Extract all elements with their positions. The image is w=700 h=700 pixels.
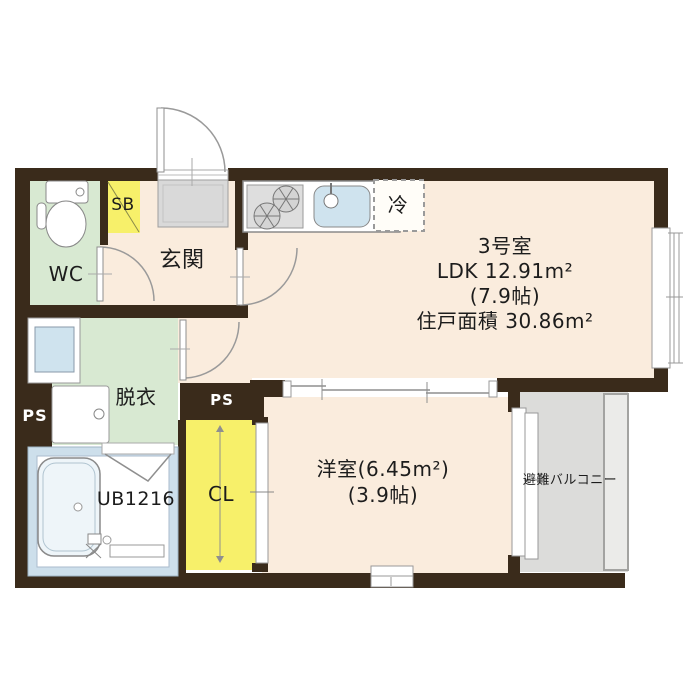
balcony-label: 避難バルコニー xyxy=(512,473,628,489)
yoshitsu-tatami: (3.9帖) xyxy=(280,482,486,508)
ldk-area: LDK 12.91m² xyxy=(405,259,605,284)
closet-sliding-door xyxy=(250,423,274,563)
vanity-unit xyxy=(28,318,80,383)
total-area: 住戸面積 30.86m² xyxy=(405,309,605,334)
ps-mid-label: PS xyxy=(204,391,240,410)
ldk-info: 3号室 LDK 12.91m² (7.9帖) 住戸面積 30.86m² xyxy=(405,234,605,334)
genkan-label: 玄関 xyxy=(140,247,224,275)
ldk-tatami: (7.9帖) xyxy=(405,284,605,309)
bath-label: UB1216 xyxy=(94,488,178,512)
yoshitsu-info: 洋室(6.45m²) (3.9帖) xyxy=(280,456,486,508)
shoebox-label: SB xyxy=(105,195,141,216)
yoshitsu-area: 洋室(6.45m²) xyxy=(280,456,486,482)
toilet xyxy=(37,181,88,247)
sliding-partition xyxy=(283,379,497,403)
unit-number: 3号室 xyxy=(405,234,605,259)
sink xyxy=(314,183,370,227)
datsui-label: 脱衣 xyxy=(96,385,176,410)
entrance-mat xyxy=(158,180,228,227)
closet-label: CL xyxy=(199,482,243,507)
datsui-door xyxy=(170,320,239,380)
fixtures-layer xyxy=(0,0,700,700)
fridge-label: 冷 xyxy=(384,193,412,218)
stove xyxy=(247,185,303,229)
ldk-window xyxy=(652,228,683,368)
entrance-threshold xyxy=(158,170,228,180)
floor-plan: WC SB 玄関 冷 3号室 LDK 12.91m² (7.9帖) 住戸面積 3… xyxy=(0,0,700,700)
yoshitsu-window xyxy=(371,566,413,587)
wc-label: WC xyxy=(36,262,96,287)
genkan-ldk-door xyxy=(230,248,297,305)
ps-left-label: PS xyxy=(18,406,52,426)
